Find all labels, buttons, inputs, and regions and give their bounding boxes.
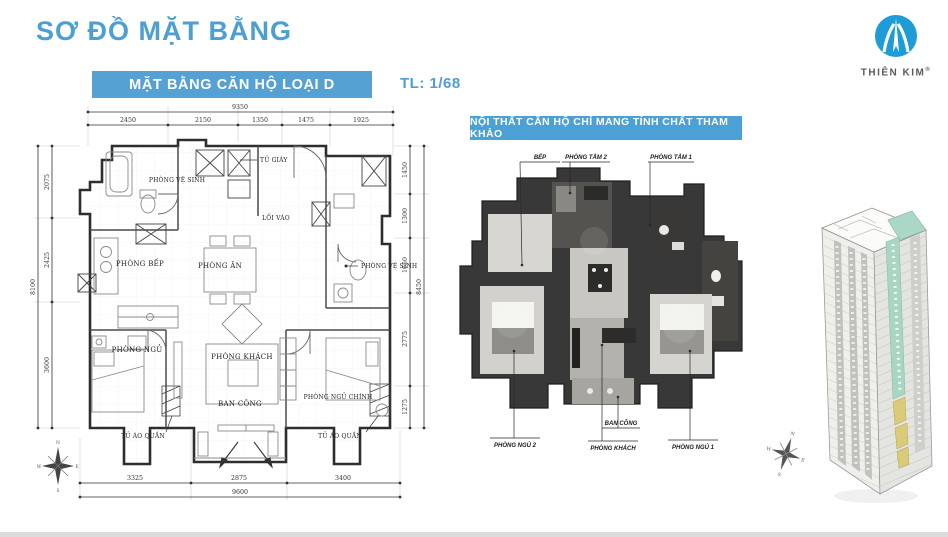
- room-label-wc-top: PHÒNG VỆ SINH: [149, 176, 205, 184]
- label-wardrobe-right: TỦ ÁO QUẦN: [318, 431, 362, 440]
- label-3d-bath1: PHÒNG TẮM 1: [650, 153, 692, 161]
- label-shoe-cabinet: TỦ GIÀY: [260, 156, 288, 164]
- compass-rose-right: N E S W: [759, 425, 812, 484]
- svg-text:1450: 1450: [402, 162, 409, 178]
- label-3d-balcony: BAN CÔNG: [605, 419, 638, 427]
- label-3d-bath2: PHÒNG TẮM 2: [565, 153, 607, 161]
- svg-text:1275: 1275: [402, 399, 409, 415]
- room-label-kitchen: PHÒNG BẾP: [116, 258, 164, 268]
- floor-plan-2d: PHÒNG VỆ SINH LỐI VÀO PHÒNG BẾP PHÒNG ĂN…: [28, 98, 463, 513]
- floor-plan-3d: BẾP PHÒNG TẮM 2 PHÒNG TẮM 1 PHÒNG NGỦ 2 …: [452, 146, 752, 476]
- svg-text:2150: 2150: [195, 117, 211, 124]
- compass-s: S: [56, 488, 59, 494]
- room-label-dining: PHÒNG ĂN: [198, 261, 242, 270]
- svg-text:2425: 2425: [44, 252, 51, 268]
- building-tower: N E S W: [758, 196, 938, 516]
- brand-name: THIÊN KIM®: [852, 67, 940, 78]
- svg-text:1650: 1650: [402, 257, 409, 273]
- page-title: SƠ ĐỒ MẶT BẰNG: [36, 16, 292, 47]
- svg-text:8450: 8450: [416, 279, 423, 295]
- compass-rose-left: N E S W: [37, 440, 79, 494]
- svg-text:2775: 2775: [402, 331, 409, 347]
- svg-text:2450: 2450: [120, 117, 136, 124]
- room-label-master: PHÒNG NGỦ CHÍNH: [304, 393, 373, 401]
- svg-text:3600: 3600: [44, 357, 51, 373]
- svg-text:1350: 1350: [252, 117, 268, 124]
- compass-w: W: [37, 464, 42, 470]
- label-wardrobe-left: TỦ ÁO QUẦN: [121, 431, 165, 440]
- svg-text:1925: 1925: [353, 117, 369, 124]
- page-bottom-edge: [0, 532, 948, 537]
- interior-disclaimer-banner: NỘI THẤT CĂN HỘ CHỈ MANG TÍNH CHẤT THAM …: [470, 116, 742, 140]
- registered-mark: ®: [925, 67, 931, 73]
- room-label-entry: LỐI VÀO: [262, 214, 290, 222]
- compass-n: N: [790, 431, 796, 438]
- compass-s: S: [777, 472, 782, 479]
- svg-text:3325: 3325: [127, 475, 143, 482]
- room-label-living: PHÒNG KHÁCH: [211, 352, 273, 361]
- compass-w: W: [765, 446, 772, 453]
- svg-text:3400: 3400: [335, 475, 351, 482]
- svg-text:2875: 2875: [231, 475, 247, 482]
- svg-text:8100: 8100: [30, 279, 37, 295]
- room-label-bedroom: PHÒNG NGỦ: [112, 344, 163, 354]
- compass-e: E: [75, 464, 78, 470]
- label-3d-bedroom2: PHÒNG NGỦ 2: [494, 441, 537, 449]
- compass-e: E: [800, 457, 805, 464]
- room-label-balcony: BAN CÔNG: [218, 399, 262, 408]
- svg-text:9350: 9350: [232, 104, 248, 111]
- compass-n: N: [56, 440, 60, 446]
- svg-text:9600: 9600: [232, 489, 248, 496]
- svg-text:2075: 2075: [44, 174, 51, 190]
- svg-text:1475: 1475: [298, 117, 314, 124]
- svg-text:1300: 1300: [402, 208, 409, 224]
- unit-type-banner: MẶT BẰNG CĂN HỘ LOẠI D: [92, 71, 372, 98]
- thien-kim-logo-icon: [872, 12, 920, 60]
- label-3d-kitchen: BẾP: [534, 153, 547, 161]
- label-3d-bedroom1: PHÒNG NGỦ 1: [672, 443, 715, 451]
- brand-logo: THIÊN KIM®: [852, 12, 940, 78]
- scale-label: TL: 1/68: [400, 75, 461, 92]
- label-3d-living: PHÒNG KHÁCH: [590, 444, 636, 452]
